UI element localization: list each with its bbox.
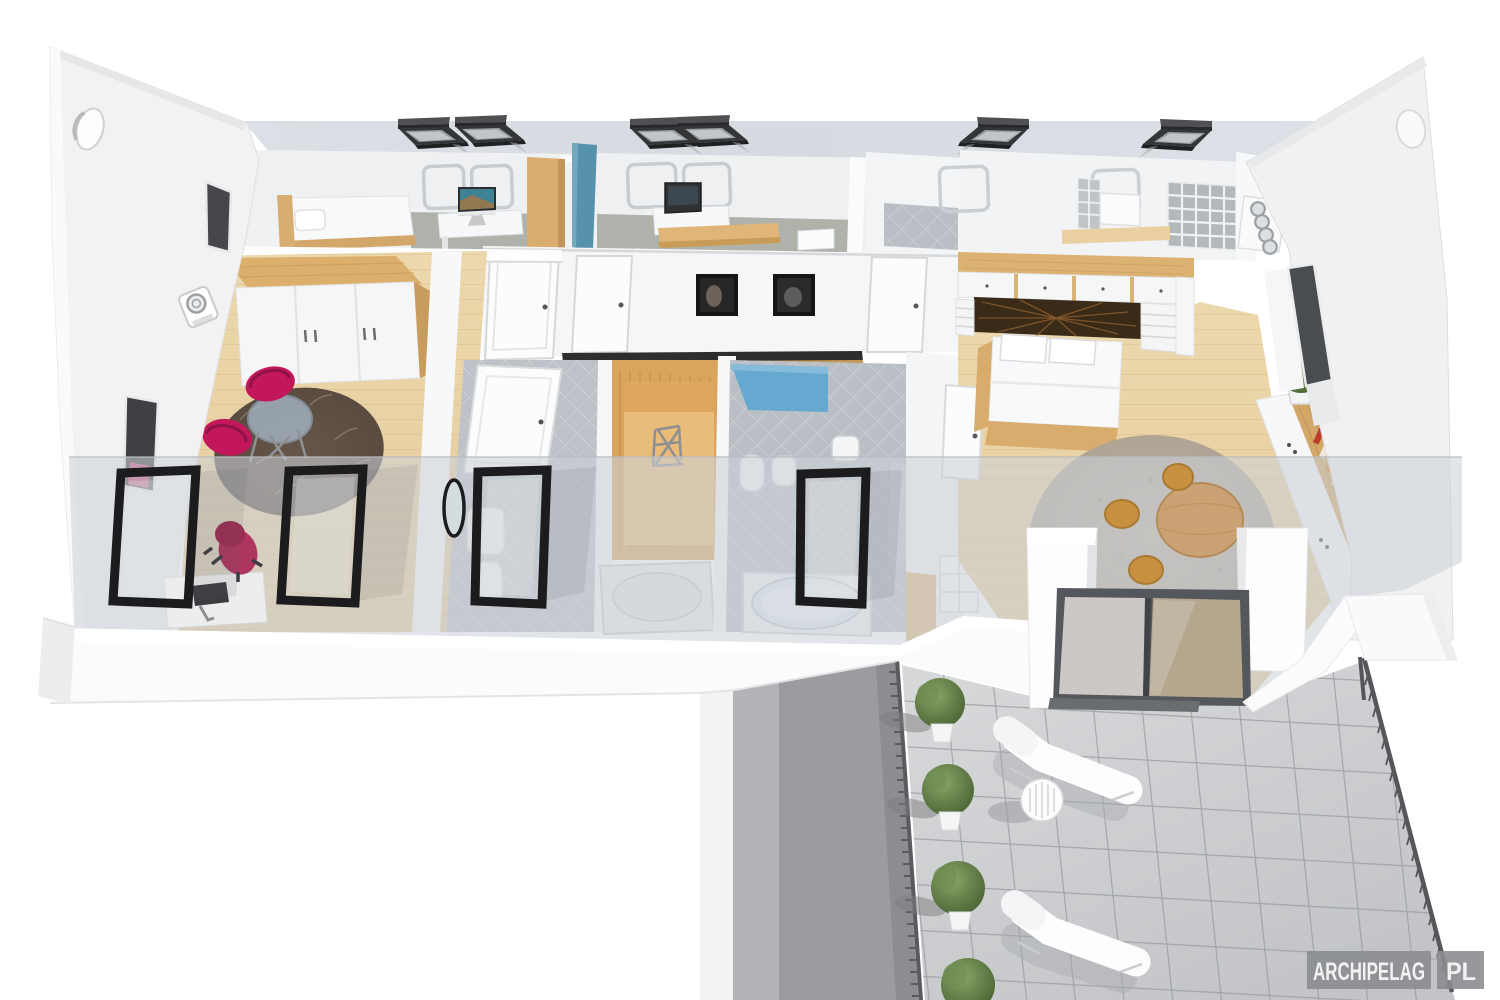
svg-text:ARCHIPELAG: ARCHIPELAG (1313, 958, 1425, 986)
svg-text:PL: PL (1446, 958, 1476, 986)
